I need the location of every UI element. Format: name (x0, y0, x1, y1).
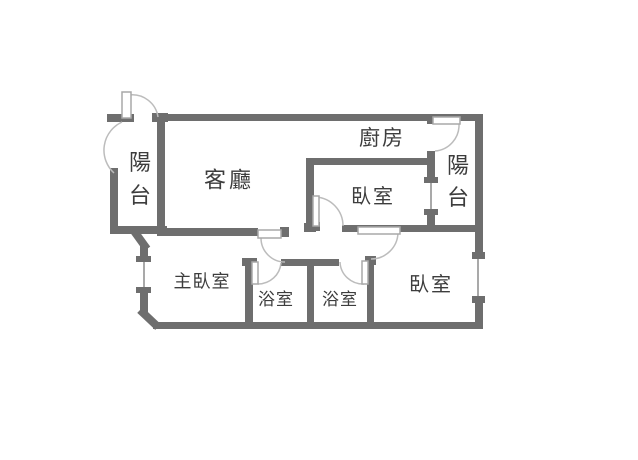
wall-kitchen-balcony-mid (427, 151, 435, 179)
door-balcony-left-leaf (122, 92, 131, 118)
door-bathroom-1-leaf (252, 262, 258, 284)
window-bedroom1-balcony-cap-1 (424, 177, 438, 183)
wall-divider-living (157, 121, 165, 233)
wall-kitchen-balcony-lower (427, 214, 435, 232)
floorplan-page: 陽台客廳廚房臥室陽台主臥室浴室浴室臥室 (0, 0, 638, 460)
wall-divider-top-cap (152, 113, 168, 122)
floorplan-canvas: 陽台客廳廚房臥室陽台主臥室浴室浴室臥室 (0, 0, 638, 460)
wall-balcony-left-top-cap (107, 114, 118, 122)
window-master-left-cap-2 (136, 287, 151, 293)
window-bedroom2-right-cap-1 (472, 252, 485, 259)
label-bathroom-2: 浴室 (322, 290, 358, 310)
door-bedroom1-leaf (313, 196, 319, 226)
wall-master-top (157, 228, 258, 236)
wall-bottom (153, 322, 483, 329)
door-bathroom-2-leaf (362, 261, 368, 284)
window-bedroom2-right-cap-2 (472, 296, 485, 303)
label-bedroom-top: 臥室 (351, 184, 395, 208)
window-master-left-cap-1 (136, 256, 151, 262)
door-living-vestibule-leaf (258, 230, 281, 238)
wall-kitchen-bedroom (307, 158, 433, 165)
label-kitchen: 廚房 (359, 126, 405, 150)
label-bedroom-right: 臥室 (409, 272, 453, 296)
label-bathroom-1: 浴室 (258, 290, 294, 310)
window-bedroom1-balcony-cap-2 (424, 209, 438, 215)
wall-balcony-left (110, 168, 118, 233)
label-living-room: 客廳 (204, 169, 254, 194)
door-bedroom2-leaf (358, 227, 400, 234)
wall-bath2-left (307, 262, 314, 322)
label-master-bedroom: 主臥室 (174, 272, 231, 293)
door-kitchen-balcony-leaf (433, 117, 460, 124)
